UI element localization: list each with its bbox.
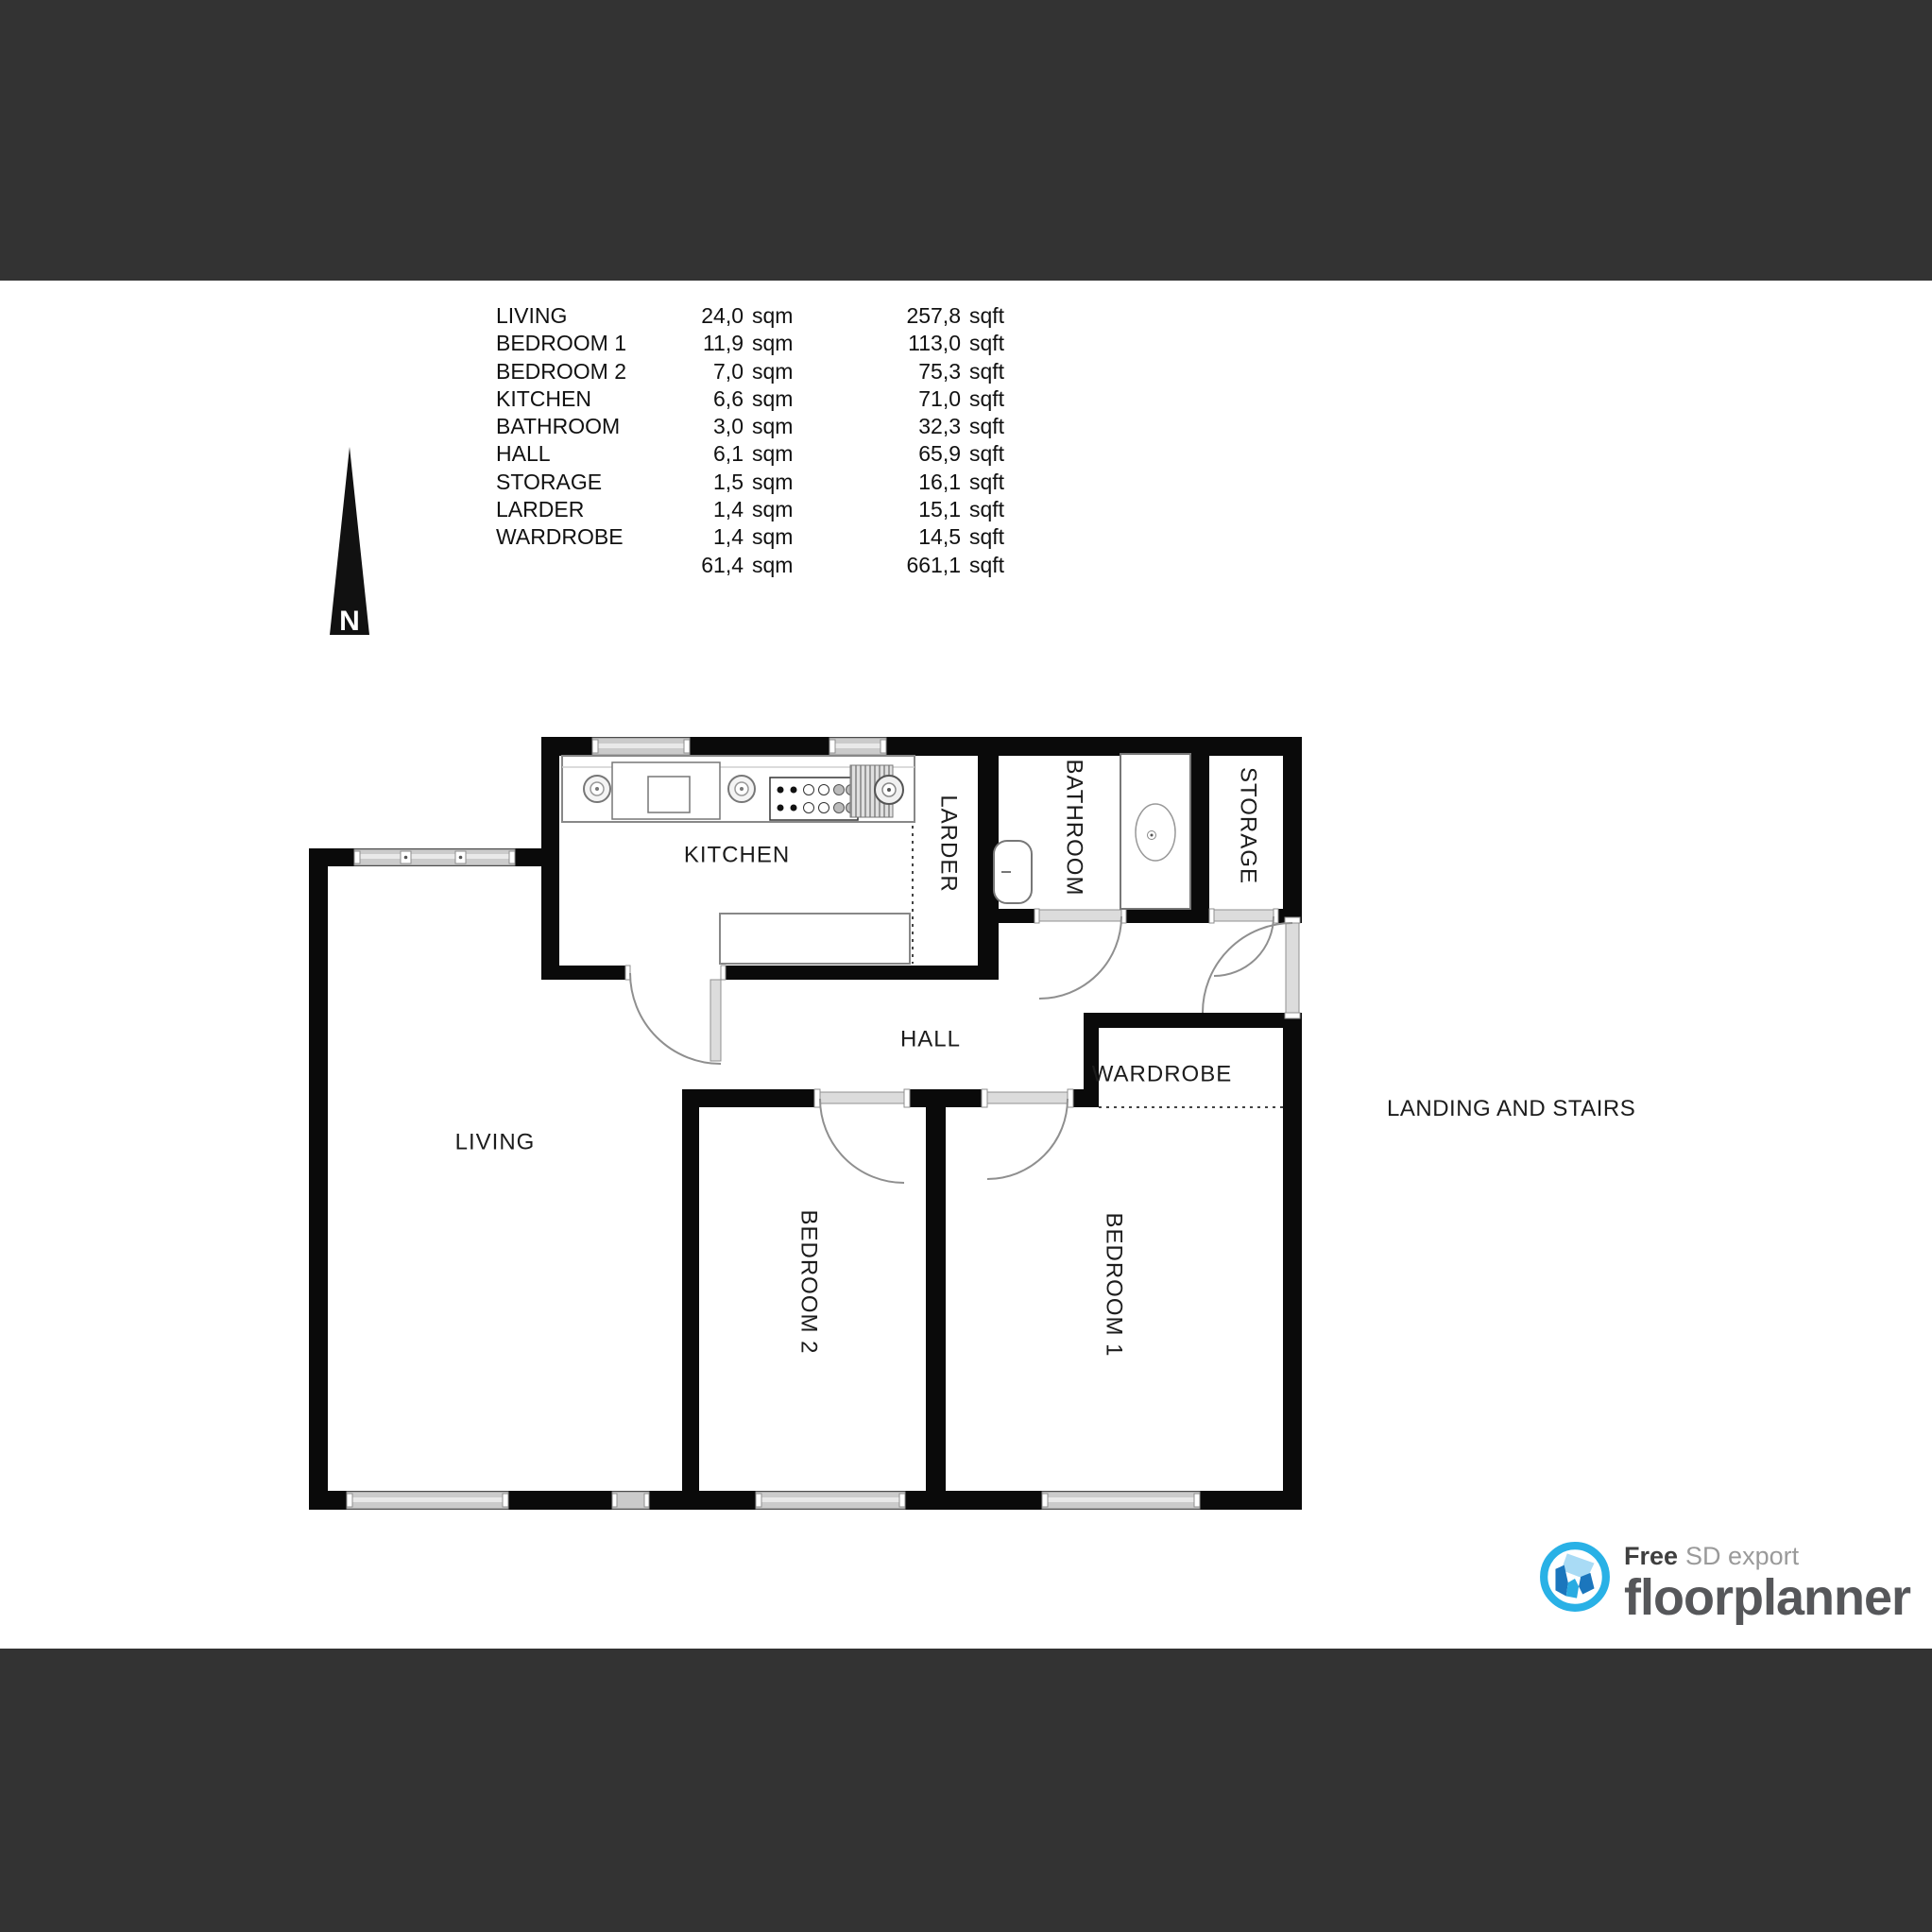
room-label-living: LIVING	[455, 1130, 536, 1155]
table-row: BEDROOM 1 11,9 sqm 113,0 sqft	[496, 330, 1019, 357]
table-row: BEDROOM 2 7,0 sqm 75,3 sqft	[496, 358, 1019, 385]
room-label-bedroom2: BEDROOM 2	[796, 1209, 822, 1354]
room-sqft: 14,5	[795, 523, 961, 551]
room-labels: KITCHEN LARDER BATHROOM STORAGE HALL WAR…	[455, 760, 1636, 1358]
kitchen-island	[720, 914, 910, 964]
logo-free-label: Free	[1624, 1542, 1678, 1570]
table-row: LIVING 24,0 sqm 257,8 sqft	[496, 302, 1019, 330]
room-sqm: 6,6	[685, 385, 744, 413]
room-sqm: 7,0	[685, 358, 744, 385]
sink-icon	[584, 776, 610, 802]
window	[829, 738, 886, 755]
table-row: WARDROBE 1,4 sqm 14,5 sqft	[496, 523, 1019, 551]
unit-sqft: sqft	[961, 440, 1019, 468]
faucet-icon	[875, 776, 903, 804]
window	[354, 849, 515, 865]
unit-sqm: sqm	[744, 302, 795, 330]
floorplanner-logo-text: FreeSD export floorplanner	[1624, 1540, 1910, 1623]
room-label-hall: HALL	[900, 1027, 961, 1052]
room-label-larder: LARDER	[936, 795, 962, 892]
hob-icon	[770, 778, 858, 820]
unit-sqft: sqft	[961, 413, 1019, 440]
table-row: BATHROOM 3,0 sqm 32,3 sqft	[496, 413, 1019, 440]
unit-sqm: sqm	[744, 440, 795, 468]
unit-sqm: sqm	[744, 469, 795, 496]
oven-icon	[612, 762, 720, 819]
unit-sqft: sqft	[961, 385, 1019, 413]
table-row: KITCHEN 6,6 sqm 71,0 sqft	[496, 385, 1019, 413]
room-sqm: 6,1	[685, 440, 744, 468]
window	[612, 1492, 649, 1509]
room-sqft: 113,0	[795, 330, 961, 357]
north-arrow: N	[330, 447, 369, 637]
unit-sqft: sqft	[961, 496, 1019, 523]
entry-door	[1203, 917, 1300, 1018]
room-name: LIVING	[496, 302, 685, 330]
room-sqft: 32,3	[795, 413, 961, 440]
room-label-bedroom1: BEDROOM 1	[1102, 1212, 1127, 1357]
room-name: KITCHEN	[496, 385, 685, 413]
room-sqft: 75,3	[795, 358, 961, 385]
window	[347, 1492, 508, 1509]
landing-stairs-label: LANDING AND STAIRS	[1387, 1096, 1635, 1121]
room-sqm: 3,0	[685, 413, 744, 440]
bedroom1-door	[982, 1089, 1073, 1179]
unit-sqm: sqm	[744, 552, 795, 579]
room-sqft: 71,0	[795, 385, 961, 413]
unit-sqft: sqft	[961, 302, 1019, 330]
room-name: BEDROOM 1	[496, 330, 685, 357]
unit-sqft: sqft	[961, 469, 1019, 496]
room-sqm: 11,9	[685, 330, 744, 357]
table-row: STORAGE 1,5 sqm 16,1 sqft	[496, 469, 1019, 496]
room-name: STORAGE	[496, 469, 685, 496]
logo-sd-export-label: SD export	[1685, 1542, 1799, 1570]
room-label-wardrobe: WARDROBE	[1092, 1062, 1232, 1087]
unit-sqft: sqft	[961, 552, 1019, 579]
north-label: N	[339, 606, 360, 637]
unit-sqm: sqm	[744, 385, 795, 413]
unit-sqft: sqft	[961, 523, 1019, 551]
table-row: HALL 6,1 sqm 65,9 sqft	[496, 440, 1019, 468]
room-sqm: 24,0	[685, 302, 744, 330]
room-label-storage: STORAGE	[1236, 767, 1261, 884]
room-name: BATHROOM	[496, 413, 685, 440]
window	[592, 738, 690, 755]
room-label-kitchen: KITCHEN	[684, 843, 790, 868]
sink-icon	[728, 776, 755, 802]
toilet-icon	[994, 841, 1032, 903]
room-sqft: 16,1	[795, 469, 961, 496]
bedroom2-door	[814, 1089, 910, 1183]
unit-sqm: sqm	[744, 496, 795, 523]
room-sqm: 1,4	[685, 523, 744, 551]
area-table: LIVING 24,0 sqm 257,8 sqft BEDROOM 1 11,…	[496, 302, 1019, 579]
floorplanner-icon	[1538, 1540, 1612, 1614]
room-sqm: 1,5	[685, 469, 744, 496]
room-name: HALL	[496, 440, 685, 468]
room-sqft: 257,8	[795, 302, 961, 330]
unit-sqm: sqm	[744, 330, 795, 357]
bathtub-icon	[1120, 754, 1190, 909]
unit-sqm: sqm	[744, 413, 795, 440]
room-sqft: 15,1	[795, 496, 961, 523]
unit-sqft: sqft	[961, 358, 1019, 385]
unit-sqm: sqm	[744, 358, 795, 385]
room-sqm: 1,4	[685, 496, 744, 523]
room-name: BEDROOM 2	[496, 358, 685, 385]
unit-sqm: sqm	[744, 523, 795, 551]
logo-brand-label: floorplanner	[1624, 1572, 1910, 1623]
bathroom-fixtures	[994, 754, 1190, 909]
table-total-row: 61,4 sqm 661,1 sqft	[496, 552, 1019, 579]
room-name: LARDER	[496, 496, 685, 523]
room-label-bathroom: BATHROOM	[1062, 760, 1087, 897]
table-row: LARDER 1,4 sqm 15,1 sqft	[496, 496, 1019, 523]
room-name: WARDROBE	[496, 523, 685, 551]
total-sqft: 661,1	[795, 552, 961, 579]
total-sqm: 61,4	[685, 552, 744, 579]
window	[756, 1492, 905, 1509]
floorplanner-logo: FreeSD export floorplanner	[1538, 1540, 1910, 1623]
unit-sqft: sqft	[961, 330, 1019, 357]
room-sqft: 65,9	[795, 440, 961, 468]
window	[1042, 1492, 1200, 1509]
storage-door	[1209, 909, 1278, 976]
floor-plan: N	[0, 0, 1932, 1932]
